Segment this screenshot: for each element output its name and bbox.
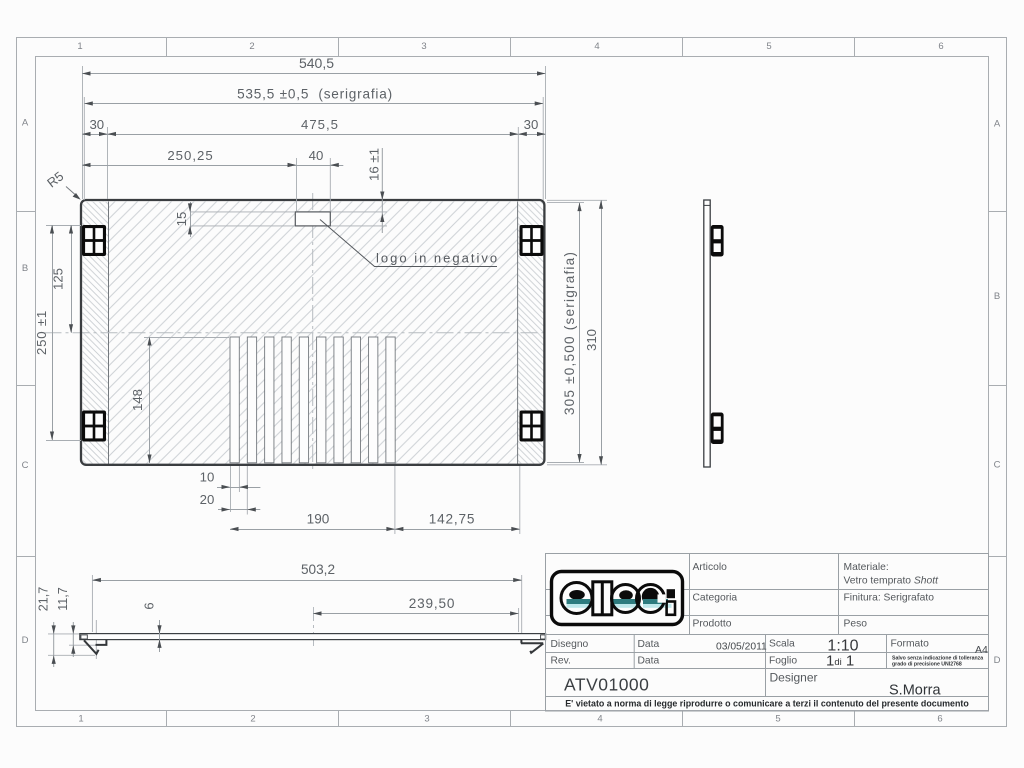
svg-text:6: 6	[938, 41, 943, 52]
svg-text:21,7: 21,7	[37, 587, 51, 612]
svg-text:30: 30	[89, 117, 104, 132]
svg-text:Foglio: Foglio	[769, 656, 797, 667]
svg-text:310: 310	[584, 329, 599, 351]
svg-text:475,5: 475,5	[301, 117, 339, 132]
svg-text:Peso: Peso	[844, 619, 868, 630]
svg-text:Designer: Designer	[770, 671, 818, 685]
svg-text:250,25: 250,25	[167, 148, 213, 163]
svg-text:Finitura: Serigrafato: Finitura: Serigrafato	[844, 593, 935, 604]
svg-text:6: 6	[937, 714, 942, 725]
svg-text:1: 1	[78, 714, 83, 725]
svg-text:190: 190	[307, 512, 330, 527]
svg-text:148: 148	[130, 389, 145, 411]
svg-text:5: 5	[775, 714, 780, 725]
svg-text:C: C	[22, 460, 29, 471]
svg-text:5: 5	[766, 41, 771, 52]
svg-text:Data: Data	[638, 639, 660, 650]
svg-text:16 ±1: 16 ±1	[367, 148, 382, 181]
svg-text:A: A	[994, 119, 1001, 130]
svg-text:4: 4	[594, 41, 599, 52]
svg-text:239,50: 239,50	[409, 596, 455, 611]
svg-text:3: 3	[424, 714, 429, 725]
svg-text:142,75: 142,75	[429, 512, 475, 527]
svg-text:E' vietato a norma di legge ri: E' vietato a norma di legge riprodurre o…	[565, 699, 969, 709]
svg-text:250 ±1: 250 ±1	[34, 310, 49, 355]
svg-text:C: C	[994, 460, 1001, 471]
svg-text:30: 30	[524, 117, 539, 132]
svg-text:Categoria: Categoria	[693, 593, 738, 604]
svg-text:03/05/2011: 03/05/2011	[716, 642, 767, 653]
svg-text:Vetro temprato Shott: Vetro temprato Shott	[844, 576, 940, 587]
svg-text:Rev.: Rev.	[551, 656, 571, 667]
svg-text:10: 10	[200, 470, 215, 485]
svg-text:1: 1	[77, 41, 82, 52]
svg-text:Data: Data	[638, 656, 660, 667]
svg-text:2: 2	[250, 714, 255, 725]
svg-text:6: 6	[142, 602, 157, 609]
svg-text:S.Morra: S.Morra	[889, 683, 942, 699]
svg-text:15: 15	[174, 212, 189, 227]
svg-text:Disegno: Disegno	[551, 639, 589, 650]
svg-text:grado di precisione UNI2768: grado di precisione UNI2768	[892, 662, 962, 668]
svg-text:535,5 ±0,5 (serigrafia): 535,5 ±0,5 (serigrafia)	[237, 87, 393, 102]
svg-text:540,5: 540,5	[299, 55, 334, 71]
svg-text:305 ±0,500 (serigrafia): 305 ±0,500 (serigrafia)	[562, 251, 577, 415]
svg-text:Articolo: Articolo	[693, 562, 728, 573]
svg-text:2: 2	[249, 41, 254, 52]
svg-text:20: 20	[200, 492, 215, 507]
svg-text:A: A	[22, 118, 29, 129]
svg-text:503,2: 503,2	[301, 562, 335, 577]
svg-text:Scala: Scala	[769, 639, 795, 650]
svg-text:Materiale:: Materiale:	[844, 562, 889, 573]
svg-text:40: 40	[309, 148, 324, 163]
svg-text:B: B	[994, 291, 1000, 302]
svg-text:125: 125	[51, 268, 66, 290]
svg-text:D: D	[22, 635, 29, 646]
svg-text:ATV01000: ATV01000	[564, 675, 649, 695]
svg-text:3: 3	[421, 41, 426, 52]
svg-text:logo in negativo: logo in negativo	[376, 251, 499, 266]
svg-text:Prodotto: Prodotto	[693, 619, 732, 630]
svg-text:A4: A4	[975, 644, 988, 656]
svg-text:Formato: Formato	[891, 639, 930, 650]
svg-text:D: D	[994, 655, 1001, 666]
svg-text:11,7: 11,7	[56, 587, 70, 611]
svg-text:B: B	[22, 263, 28, 274]
svg-text:4: 4	[597, 714, 602, 725]
